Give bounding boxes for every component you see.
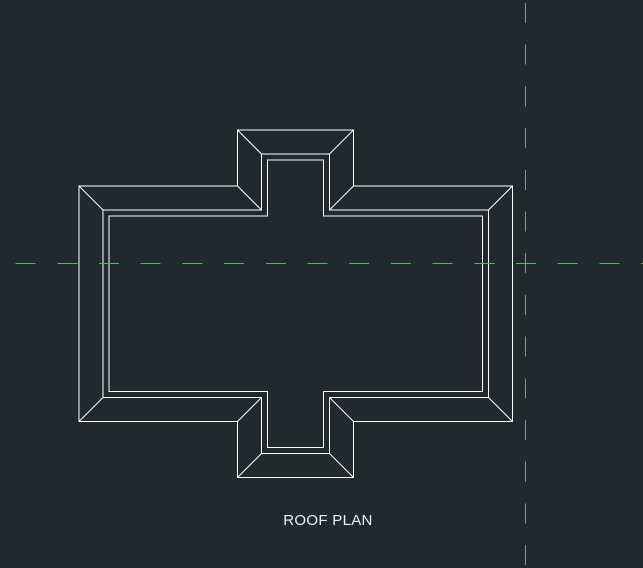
drawing-title-text[interactable]: ROOF PLAN [283,513,372,528]
roof-fascia-outline-middle[interactable] [103,154,489,454]
roof-hip-line-7[interactable] [489,398,513,422]
roof-hip-line-1[interactable] [79,186,103,210]
roof-hip-line-9[interactable] [330,454,354,478]
cad-model-space-canvas[interactable]: ROOF PLAN [0,0,643,568]
roof-plan-drawing [0,0,643,568]
roof-hip-line-3[interactable] [238,130,262,154]
roof-wall-outline-inner[interactable] [109,160,483,448]
roof-hip-line-5[interactable] [330,186,354,210]
roof-hip-line-2[interactable] [238,186,262,210]
roof-hip-line-4[interactable] [330,130,354,154]
roof-eave-outline-outer[interactable] [79,130,513,478]
roof-hip-line-10[interactable] [238,454,262,478]
roof-hip-line-11[interactable] [238,398,262,422]
roof-hip-line-6[interactable] [489,186,513,210]
roof-hip-line-8[interactable] [330,398,354,422]
roof-hip-line-12[interactable] [79,398,103,422]
